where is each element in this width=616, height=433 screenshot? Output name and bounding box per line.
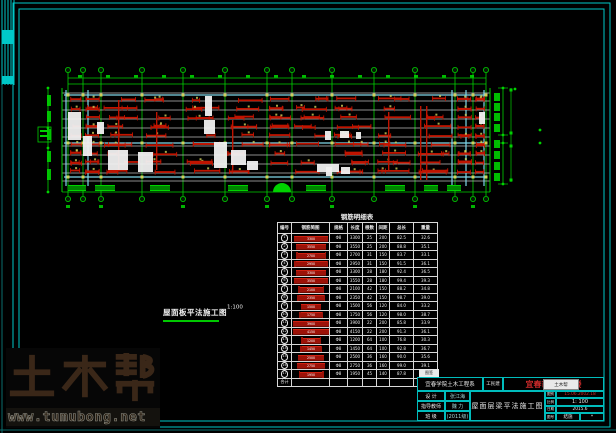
- cell: 87.8: [390, 370, 414, 379]
- class-label: 班 级: [417, 411, 445, 421]
- cell: 2100: [348, 285, 363, 294]
- col-header: 编号: [278, 223, 292, 234]
- cell: 2350: [348, 293, 363, 302]
- cell: 98.7: [390, 293, 414, 302]
- cell: Φ8: [330, 234, 348, 243]
- cell: 83.7: [390, 251, 414, 260]
- cell: [348, 378, 363, 387]
- watermark-url: www.tumubong.net: [6, 408, 160, 426]
- cell: 150: [377, 251, 390, 260]
- cell: 39.0: [414, 293, 438, 302]
- cell: 1950: [348, 370, 363, 379]
- rebar-diagram: 1750: [300, 312, 322, 318]
- cell: 22: [363, 327, 377, 336]
- rebar-row: 141450Φ814506410092.836.7: [278, 344, 438, 353]
- cell: 3900: [348, 319, 363, 328]
- rebar-diagram: 1500: [301, 304, 321, 310]
- bar-number: 14: [281, 345, 289, 353]
- col-header: 钢筋简图: [292, 223, 330, 234]
- sheet-no-label: 图号: [545, 413, 556, 421]
- cell: Φ8: [330, 344, 348, 353]
- cell: 85.8: [390, 319, 414, 328]
- note-stamp: 图签: [419, 369, 439, 377]
- rebar-row: 72100Φ821004215088.234.8: [278, 285, 438, 294]
- plan-caption-text: 屋面板平法施工图: [163, 308, 227, 317]
- title-block: 宜春学院土木工程系 工民建 宜春市某综合楼 土木帮 设 计 张江海 指导教师 魏…: [417, 377, 604, 421]
- title-block-department: 工民建: [483, 377, 503, 391]
- cell: 200: [377, 242, 390, 251]
- cell: 100: [377, 336, 390, 345]
- advisor-label: 指导教师: [417, 401, 445, 411]
- cell: 2950: [348, 259, 363, 268]
- rebar-diagram: 4150: [293, 329, 329, 335]
- cell: 90.0: [390, 353, 414, 362]
- cell: 98.0: [390, 310, 414, 319]
- rebar-diagram: 2500: [298, 355, 324, 361]
- cell: 25: [363, 242, 377, 251]
- rebar-row: 101750Φ817505612098.038.7: [278, 310, 438, 319]
- cell: 36.1: [414, 259, 438, 268]
- bar-number: 7: [281, 285, 289, 293]
- rebar-row: 63550Φ835502818099.439.3: [278, 276, 438, 285]
- rebar-row: 42950Φ829503115091.536.1: [278, 259, 438, 268]
- cell: 2500: [348, 353, 363, 362]
- drawing-title: 屋面层梁平法施工图: [470, 391, 545, 421]
- rebar-diagram: 3550: [294, 278, 328, 284]
- cell: 56: [363, 310, 377, 319]
- date-value: 2015.6: [556, 406, 604, 413]
- cell: 64: [363, 336, 377, 345]
- rebar-row: 91500Φ815005612084.033.2: [278, 302, 438, 311]
- cell: 180: [377, 268, 390, 277]
- title-block-stamp: 土木帮: [543, 379, 579, 390]
- rebar-row: 162750Φ827503616099.039.1: [278, 361, 438, 370]
- class-value: (2011级): [445, 411, 470, 421]
- cell: Φ8: [330, 285, 348, 294]
- cell: [390, 378, 414, 387]
- cell: 120: [377, 302, 390, 311]
- cell: 33.2: [414, 302, 438, 311]
- bar-number: 6: [281, 277, 289, 285]
- cell: 33.9: [414, 319, 438, 328]
- col-header: 重量: [414, 223, 438, 234]
- rebar-schedule-table: 编号钢筋简图规格长度根数间距总长重量 13300Φ833002520082.53…: [277, 222, 438, 387]
- rebar-diagram: 2750: [297, 363, 325, 369]
- rebar-diagram: 2100: [299, 287, 323, 293]
- cell: 30.3: [414, 336, 438, 345]
- bar-number: 10: [281, 311, 289, 319]
- date-label: 日期: [545, 406, 556, 413]
- cell: 36.1: [414, 327, 438, 336]
- cell: 22: [363, 319, 377, 328]
- bar-number: 13: [281, 336, 289, 344]
- scale-label: 比例: [545, 398, 556, 406]
- cell: 36: [363, 361, 377, 370]
- rebar-diagram: 1200: [302, 338, 320, 344]
- cell: 140: [377, 370, 390, 379]
- watermark-logo: [6, 348, 160, 408]
- cell: 160: [377, 353, 390, 362]
- cell: Φ8: [330, 293, 348, 302]
- cell: Φ8: [330, 302, 348, 311]
- rebar-row: 13300Φ833002520082.532.6: [278, 234, 438, 243]
- cell: 25: [363, 234, 377, 243]
- bar-number: 11: [281, 319, 289, 327]
- col-header: 根数: [363, 223, 377, 234]
- cell: 28: [363, 276, 377, 285]
- rebar-row: 124150Φ841502220091.336.1: [278, 327, 438, 336]
- bar-number: 16: [281, 362, 289, 370]
- rebar-schedule-title: 钢筋明细表: [277, 211, 437, 221]
- sheet-type-value: 15.06.2002.18: [556, 391, 604, 398]
- cell: 3300: [348, 268, 363, 277]
- cell: 32.6: [414, 234, 438, 243]
- cell: 38.7: [414, 310, 438, 319]
- cell: 28: [363, 268, 377, 277]
- advisor-value: 魏 力: [445, 401, 470, 411]
- cell: 200: [377, 319, 390, 328]
- bar-number: 2: [281, 243, 289, 251]
- cell: Φ8: [330, 251, 348, 260]
- rebar-diagram: 3550: [296, 244, 326, 250]
- cell: 88.8: [390, 242, 414, 251]
- col-header: 总长: [390, 223, 414, 234]
- designer-label: 设 计: [417, 391, 445, 401]
- cell: 180: [377, 276, 390, 285]
- cell: Φ8: [330, 353, 348, 362]
- designer-value: 张江海: [445, 391, 470, 401]
- cell: 150: [377, 293, 390, 302]
- col-header: 规格: [330, 223, 348, 234]
- bar-number: 12: [281, 328, 289, 336]
- cell: 200: [377, 327, 390, 336]
- sheet-no-extra: *: [580, 413, 604, 421]
- cell: 56: [363, 302, 377, 311]
- rebar-diagram: 3900: [293, 321, 329, 327]
- cell: 31: [363, 251, 377, 260]
- cell: Φ8: [330, 276, 348, 285]
- cell: 1200: [348, 336, 363, 345]
- rebar-diagram: 1450: [301, 346, 321, 352]
- cell: Φ8: [330, 268, 348, 277]
- rebar-row: 113900Φ839002220085.833.9: [278, 319, 438, 328]
- watermark: www.tumubong.net: [6, 348, 160, 428]
- cell: [363, 378, 377, 387]
- cell: 4150: [348, 327, 363, 336]
- cell: 82.5: [390, 234, 414, 243]
- cell: 88.2: [390, 285, 414, 294]
- cell: Φ8: [330, 361, 348, 370]
- bar-number: 5: [281, 268, 289, 276]
- rebar-diagram: 1950: [300, 372, 323, 378]
- cell: 150: [377, 285, 390, 294]
- cell: 100: [377, 344, 390, 353]
- bar-number: 8: [281, 294, 289, 302]
- cell: 34.8: [414, 285, 438, 294]
- rebar-diagram: 2350: [298, 295, 324, 301]
- rebar-row: 32700Φ827003115083.733.1: [278, 251, 438, 260]
- cell: 36.7: [414, 344, 438, 353]
- bar-number: 15: [281, 353, 289, 361]
- rebar-row: 82350Φ823504215098.739.0: [278, 293, 438, 302]
- bar-number: 4: [281, 260, 289, 268]
- bar-number: 1: [281, 234, 289, 242]
- rebar-row: 171950Φ819504514087.834.7: [278, 370, 438, 379]
- cell: 36: [363, 353, 377, 362]
- cell: 84.0: [390, 302, 414, 311]
- cell: 35.1: [414, 242, 438, 251]
- cell: 76.8: [390, 336, 414, 345]
- cell: 3300: [348, 234, 363, 243]
- cell: 150: [377, 259, 390, 268]
- cell: 1750: [348, 310, 363, 319]
- cell: Φ8: [330, 242, 348, 251]
- rebar-diagram: 2950: [295, 261, 327, 267]
- rebar-row: 合计595.8: [278, 378, 438, 387]
- cell: 99.4: [390, 276, 414, 285]
- cell: Φ8: [330, 310, 348, 319]
- cell: 1500: [348, 302, 363, 311]
- cell: 200: [377, 234, 390, 243]
- rebar-diagram: 3300: [294, 236, 328, 242]
- rebar-row: 53300Φ833002818092.436.5: [278, 268, 438, 277]
- rebar-row: 152500Φ825003616090.035.6: [278, 353, 438, 362]
- plan-caption-scale: 1:100: [227, 305, 243, 311]
- rebar-diagram: 3300: [296, 270, 326, 276]
- bar-number: 9: [281, 302, 289, 310]
- plan-caption-underline: [163, 320, 219, 322]
- cell: 42: [363, 293, 377, 302]
- cell: 2750: [348, 361, 363, 370]
- col-header: 间距: [377, 223, 390, 234]
- plan-caption: 屋面板平法施工图1:100: [163, 300, 243, 322]
- cell: 160: [377, 361, 390, 370]
- rebar-row: 23550Φ835502520088.835.1: [278, 242, 438, 251]
- rebar-row: 131200Φ812006410076.830.3: [278, 336, 438, 345]
- cell: 3550: [348, 242, 363, 251]
- cell: Φ8: [330, 370, 348, 379]
- cell: 39.3: [414, 276, 438, 285]
- bar-number: 3: [281, 251, 289, 259]
- cell: 92.8: [390, 344, 414, 353]
- scale-value: 1: 100: [556, 398, 604, 406]
- cell: 92.4: [390, 268, 414, 277]
- cell: 91.5: [390, 259, 414, 268]
- rebar-schedule: 钢筋明细表 编号钢筋简图规格长度根数间距总长重量 13300Φ833002520…: [277, 211, 437, 387]
- cell: 120: [377, 310, 390, 319]
- rebar-schedule-header: 编号钢筋简图规格长度根数间距总长重量: [278, 223, 438, 234]
- cell: Φ8: [330, 259, 348, 268]
- cell: [330, 378, 348, 387]
- cell: Φ8: [330, 319, 348, 328]
- cell: Φ8: [330, 327, 348, 336]
- bar-number: 17: [281, 370, 289, 378]
- cell: 35.6: [414, 353, 438, 362]
- col-header: 长度: [348, 223, 363, 234]
- title-block-organization: 宜春学院土木工程系: [417, 377, 483, 391]
- cell: 99.0: [390, 361, 414, 370]
- cell: [377, 378, 390, 387]
- cell: 91.3: [390, 327, 414, 336]
- cell: 42: [363, 285, 377, 294]
- cell: 2700: [348, 251, 363, 260]
- cell: 45: [363, 370, 377, 379]
- cell: 36.5: [414, 268, 438, 277]
- cell: Φ8: [330, 336, 348, 345]
- cell: 64: [363, 344, 377, 353]
- cell: 33.1: [414, 251, 438, 260]
- cell: 31: [363, 259, 377, 268]
- sheet-type-label: 图别: [545, 391, 556, 398]
- cell: 1450: [348, 344, 363, 353]
- cell: 3550: [348, 276, 363, 285]
- sheet-no-value: 结施: [556, 413, 580, 421]
- rebar-diagram: 2700: [297, 253, 325, 259]
